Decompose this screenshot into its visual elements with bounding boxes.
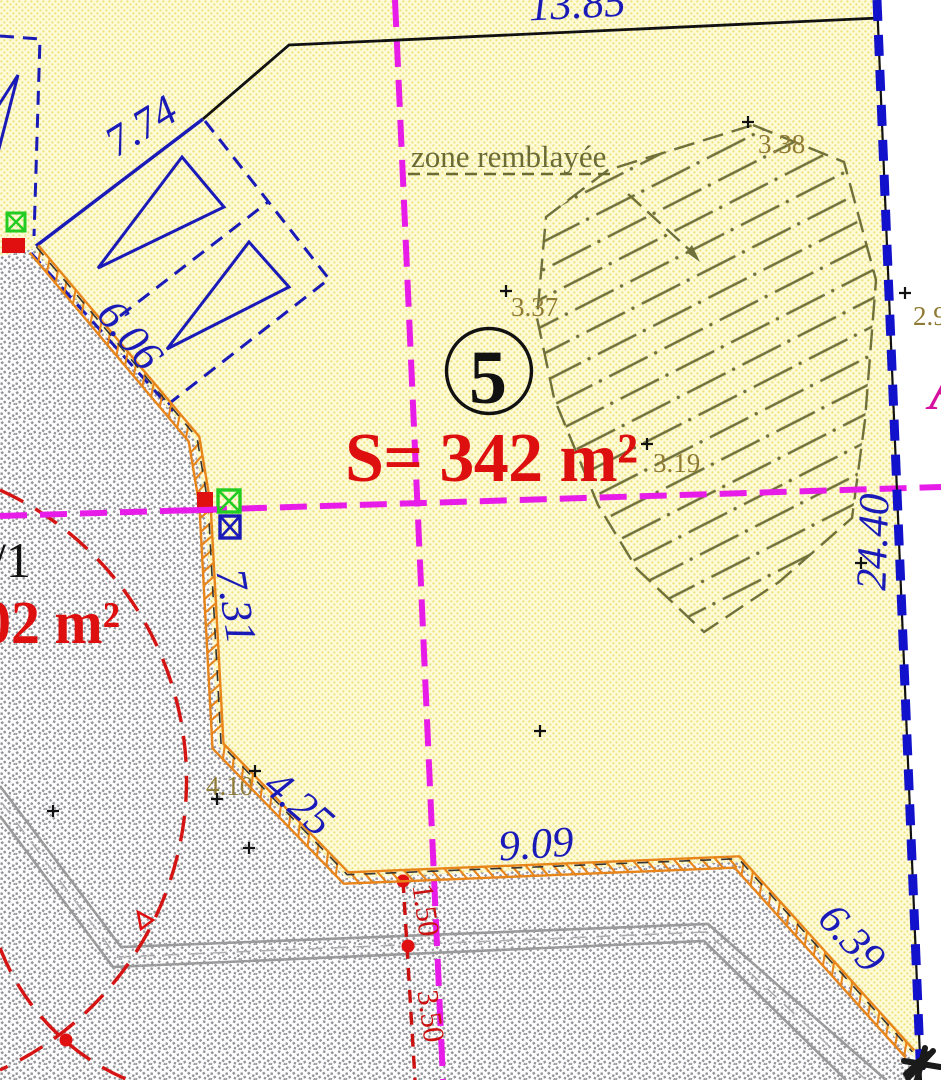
svg-text:/1: /1	[0, 532, 31, 588]
svg-text:3.37: 3.37	[511, 292, 558, 322]
svg-text:9.09: 9.09	[497, 818, 575, 870]
svg-text:02 m²: 02 m²	[0, 590, 120, 657]
svg-text:4.10: 4.10	[206, 771, 253, 801]
svg-text:5: 5	[469, 336, 507, 420]
svg-text:S= 342 m²: S= 342 m²	[345, 420, 638, 497]
svg-text:3.19: 3.19	[653, 448, 700, 478]
svg-text:3.38: 3.38	[758, 129, 805, 159]
svg-text:24.40: 24.40	[848, 493, 898, 591]
svg-text:13.85: 13.85	[527, 0, 626, 30]
svg-text:2.9: 2.9	[913, 301, 941, 331]
svg-text:zone remblayée: zone remblayée	[411, 139, 606, 174]
